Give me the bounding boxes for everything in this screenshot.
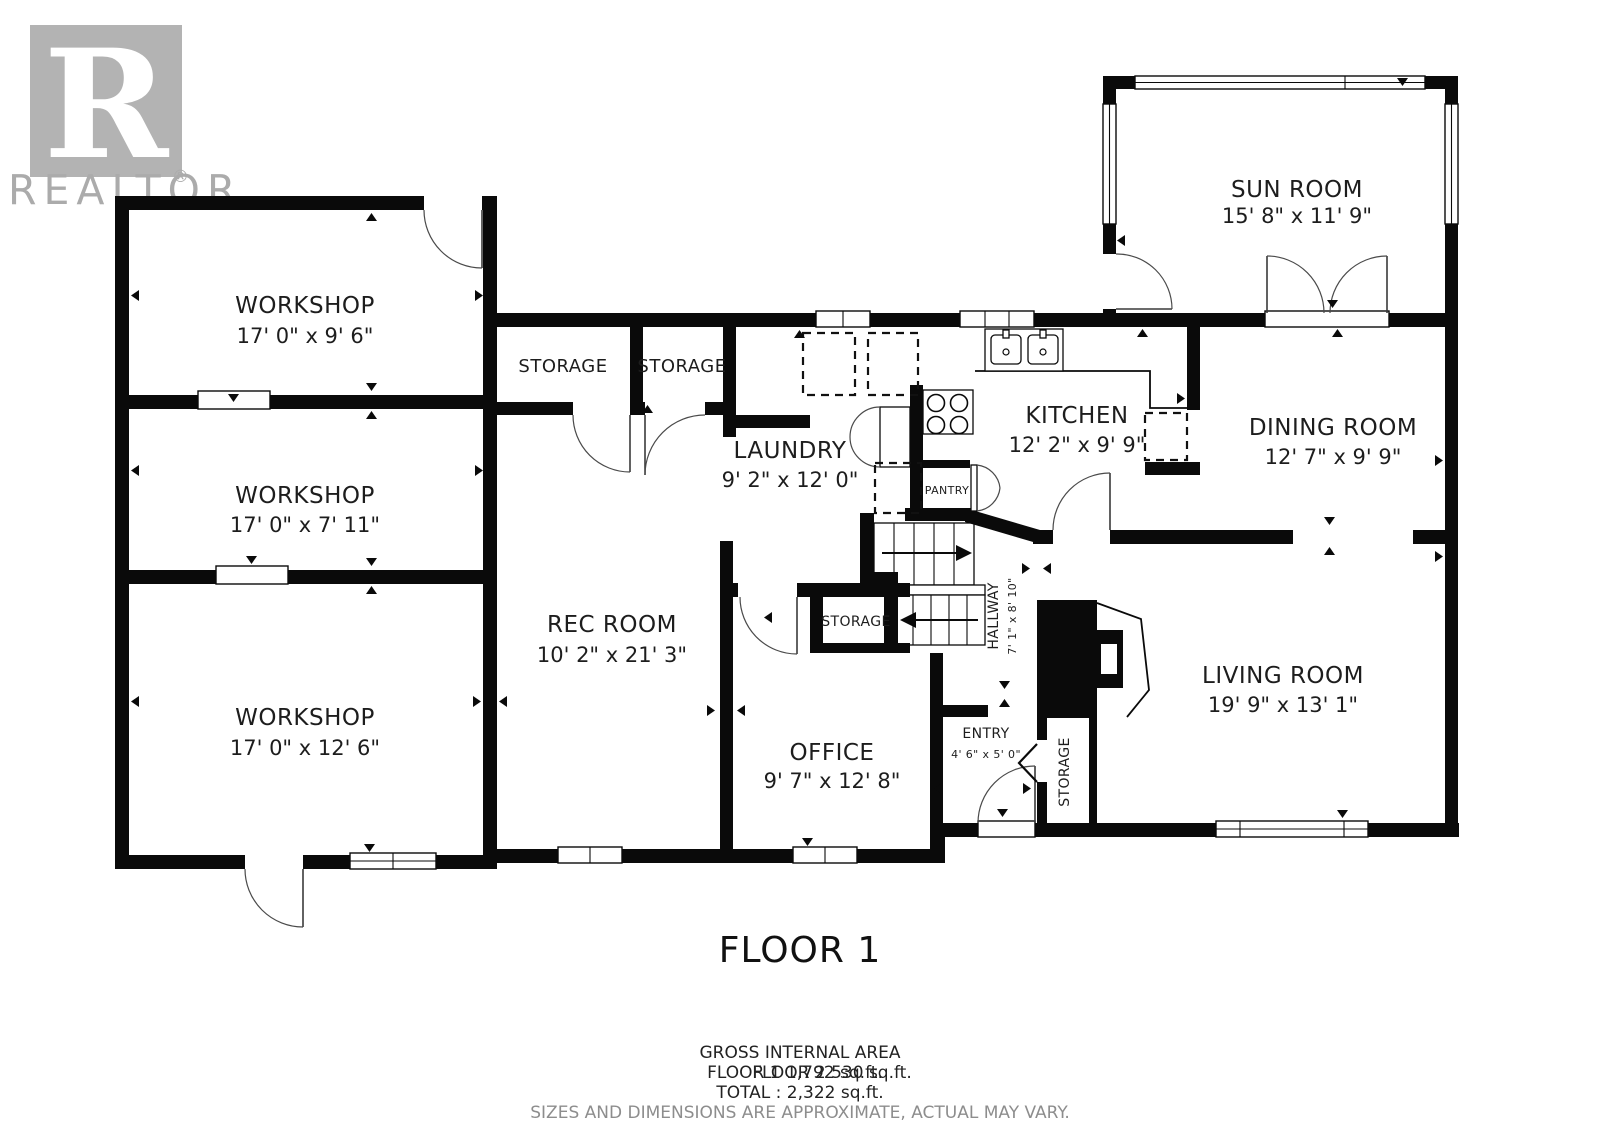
wall-segment <box>1103 224 1116 254</box>
room-label-rec-room: REC ROOM <box>547 612 677 638</box>
door-opening <box>1103 254 1116 309</box>
room-dims-rec-room: 10' 2" x 21' 3" <box>537 643 687 667</box>
wall-segment <box>129 395 483 409</box>
footer-disclaimer: SIZES AND DIMENSIONS ARE APPROXIMATE, AC… <box>530 1103 1069 1123</box>
floor-plan: R REALTOR ® <box>0 0 1600 1131</box>
room-label-storage1: STORAGE <box>518 356 607 377</box>
room-label-hallway: HALLWAY <box>986 582 1002 649</box>
wall-segment <box>905 508 975 521</box>
room-dims-living: 19' 9" x 13' 1" <box>1208 693 1358 717</box>
door-opening <box>738 583 797 597</box>
wall-segment <box>1187 327 1200 410</box>
wall-segment <box>1145 462 1200 475</box>
room-label-entry: ENTRY <box>962 726 1009 742</box>
room-dims-kitchen: 12' 2" x 9' 9" <box>1009 433 1146 457</box>
door-opening <box>573 402 630 415</box>
wall-segment <box>930 653 943 851</box>
room-dims-workshop3: 17' 0" x 12' 6" <box>230 736 380 760</box>
room-dims-office: 9' 7" x 12' 8" <box>764 769 901 793</box>
faucet-icon <box>1040 330 1046 338</box>
wall-segment <box>1445 224 1458 313</box>
room-dims-sunroom: 15' 8" x 11' 9" <box>1222 204 1372 228</box>
wall-segment <box>1445 313 1458 837</box>
room-dims-entry: 4' 6" x 5' 0" <box>951 748 1021 761</box>
wall-segment <box>483 196 497 869</box>
room-label-workshop3: WORKSHOP <box>235 705 375 731</box>
faucet-icon <box>1003 330 1009 338</box>
wall-segment <box>1103 89 1116 104</box>
room-label-storage-entry: STORAGE <box>1057 737 1073 806</box>
window <box>960 311 1034 327</box>
fireplace-firebox <box>1101 644 1117 674</box>
room-label-laundry: LAUNDRY <box>734 438 847 464</box>
wall-segment <box>129 570 483 584</box>
door-opening <box>645 402 705 415</box>
wall-segment <box>923 460 970 468</box>
wall-segment <box>1425 76 1458 89</box>
wall-segment <box>943 705 988 717</box>
room-label-pantry: PANTRY <box>925 484 969 497</box>
footer-total-area: TOTAL : 2,322 sq.ft. <box>715 1083 883 1103</box>
room-label-office: OFFICE <box>790 740 875 766</box>
door-opening <box>245 855 303 869</box>
wall-segment <box>1103 76 1135 89</box>
door-opening <box>1053 530 1110 544</box>
realtor-registered-mark: ® <box>172 167 189 187</box>
wall-segment <box>910 385 923 515</box>
room-dims-workshop2: 17' 0" x 7' 11" <box>230 513 380 537</box>
room-dims-hallway: 7' 1" x 8' 10" <box>1006 577 1019 654</box>
room-label-storage2: STORAGE <box>637 356 726 377</box>
door-opening <box>1037 740 1047 782</box>
footer-area-title: GROSS INTERNAL AREA <box>699 1043 900 1063</box>
room-dims-workshop1: 17' 0" x 9' 6" <box>237 324 374 348</box>
wall-segment <box>1103 309 1116 327</box>
door-threshold <box>978 821 1035 837</box>
room-label-workshop1: WORKSHOP <box>235 293 375 319</box>
room-label-dining: DINING ROOM <box>1249 415 1417 441</box>
wall-segment <box>860 572 898 595</box>
wall-segment <box>115 196 129 869</box>
room-label-living: LIVING ROOM <box>1202 663 1364 689</box>
door-opening <box>424 196 482 210</box>
wall-segment <box>930 823 945 863</box>
wall-segment <box>1445 89 1458 104</box>
pass-through-window <box>216 566 288 584</box>
wall-segment <box>723 415 810 428</box>
room-label-sunroom: SUN ROOM <box>1231 177 1363 203</box>
fireplace-mass <box>1037 600 1097 718</box>
wall-segment <box>860 513 874 578</box>
room-dims-laundry: 9' 2" x 12' 0" <box>722 468 859 492</box>
passage-opening <box>1293 530 1413 544</box>
footer-floor2-area: FLOOR 2 530 sq.ft. <box>752 1063 912 1083</box>
room-label-storage-hall: STORAGE <box>821 614 890 630</box>
room-label-workshop2: WORKSHOP <box>235 483 375 509</box>
room-label-kitchen: KITCHEN <box>1025 403 1128 429</box>
room-dims-dining: 12' 7" x 9' 9" <box>1265 445 1402 469</box>
floor-title: FLOOR 1 <box>719 930 882 971</box>
wall-segment <box>115 855 497 869</box>
door-threshold <box>1265 311 1389 327</box>
wall-segment <box>1089 718 1097 823</box>
